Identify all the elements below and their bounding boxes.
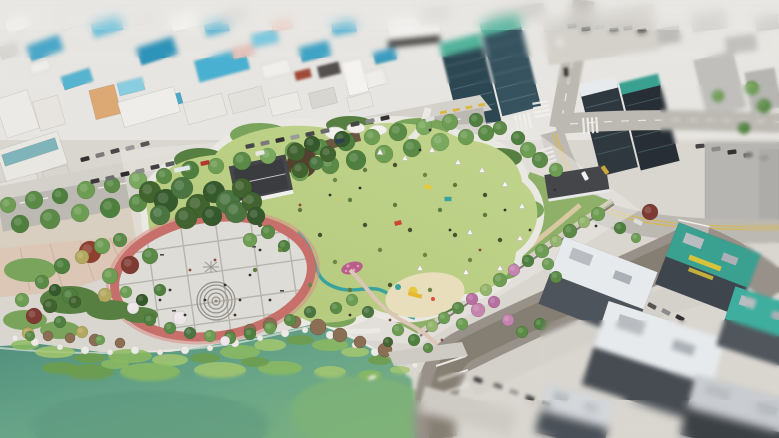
scene-stage [0,0,779,438]
park-aerial-rendering [0,0,779,438]
plaza-star-motif [203,261,219,273]
